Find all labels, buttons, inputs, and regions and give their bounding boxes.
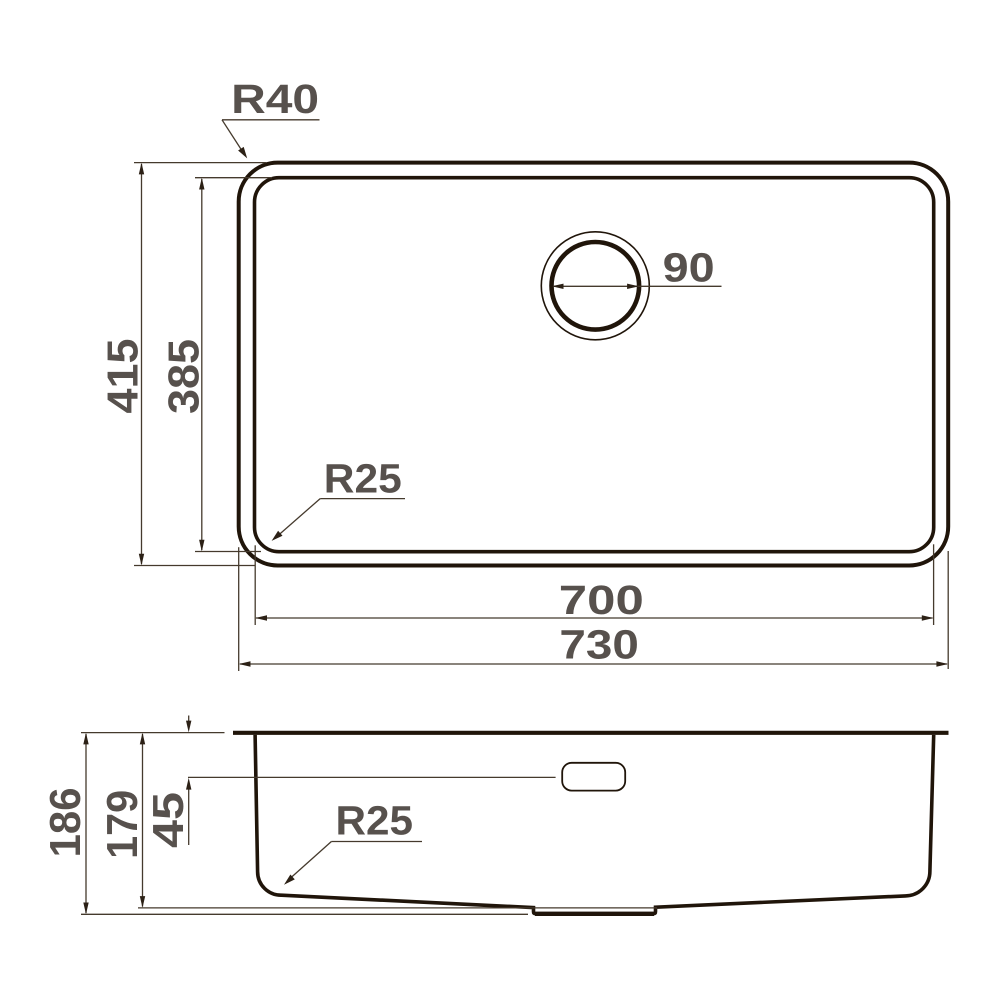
svg-text:730: 730 [559,622,639,668]
svg-text:186: 186 [42,787,90,857]
svg-text:415: 415 [99,339,147,414]
svg-text:90: 90 [663,245,715,291]
svg-text:R25: R25 [324,456,402,502]
svg-text:R40: R40 [231,76,319,122]
svg-text:R25: R25 [336,798,414,844]
svg-text:385: 385 [161,339,209,414]
svg-text:179: 179 [99,790,147,859]
svg-text:45: 45 [145,792,193,848]
svg-text:700: 700 [559,577,644,623]
